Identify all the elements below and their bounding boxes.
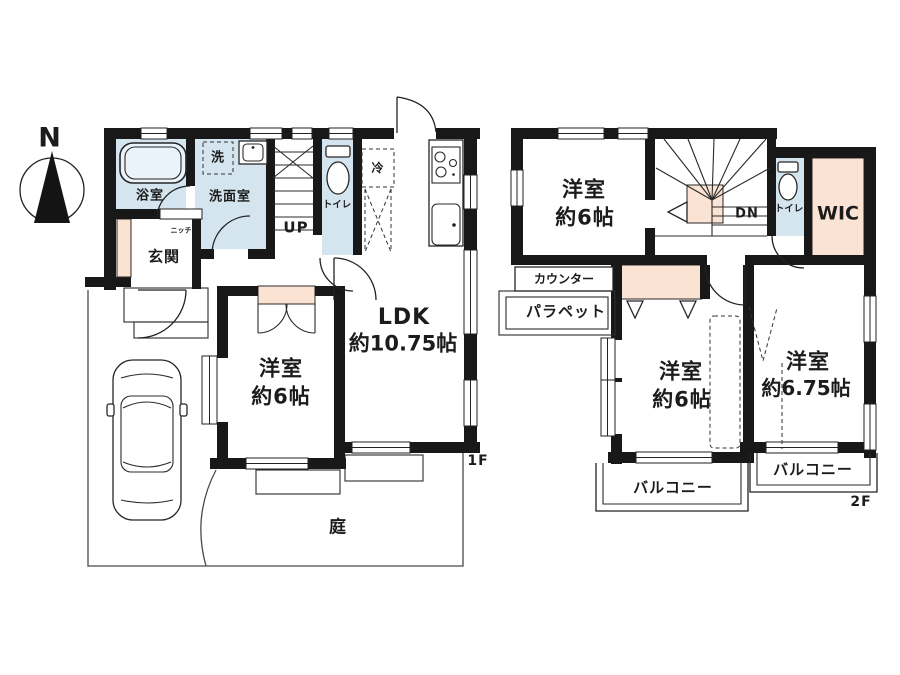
room-label-entrance: 玄関 (148, 250, 180, 265)
room-size-bedroom3-2f: 約6.75帖 (761, 378, 850, 398)
back-door (394, 97, 436, 139)
niche-label: ニッチ (171, 228, 192, 235)
room-label-bedroom1-2f: 洋室 (562, 180, 606, 201)
compass-north-icon (20, 151, 84, 223)
niche-shelf (160, 209, 202, 219)
floor-plan: N 浴室 洗 洗面室 UP トイレ ニッチ 玄関 冷 洋室 約6帖 LDK 約1… (0, 0, 900, 675)
stairs-1f (273, 146, 313, 230)
car-icon (107, 360, 187, 520)
room-label-toilet-1f: トイレ (323, 200, 352, 210)
closet-2f-middle (620, 265, 702, 299)
bay-window (202, 356, 228, 424)
toilet-icon-2f (778, 162, 798, 200)
floor1-label: 1F (467, 454, 488, 468)
parapet-label: パラペット (526, 305, 606, 320)
room-label-bedroom2-2f: 洋室 (659, 362, 703, 383)
room-label-washroom: 洗面室 (209, 191, 251, 204)
room-size-bedroom-1f: 約6帖 (251, 387, 311, 408)
garden-label: 庭 (329, 520, 347, 537)
room-size-bedroom2-2f: 約6帖 (652, 390, 712, 411)
bathtub-icon (120, 143, 186, 183)
room-label-toilet-2f: トイレ (775, 204, 804, 214)
bay-window (601, 338, 622, 436)
room-label-bathroom: 浴室 (136, 190, 164, 203)
room-label-ldk: LDK (378, 307, 430, 329)
refrigerator-label: 冷 (371, 162, 384, 174)
room-label-bedroom-1f: 洋室 (259, 359, 303, 380)
room-label-bedroom3-2f: 洋室 (786, 352, 830, 373)
room-size-ldk: 約10.75帖 (349, 334, 457, 355)
room-label-washing-machine: 洗 (211, 152, 225, 165)
toilet-icon-1f (326, 146, 350, 194)
counter-label: カウンター (534, 273, 594, 285)
room-size-bedroom1-2f: 約6帖 (555, 208, 615, 229)
washbasin-icon (239, 141, 267, 164)
floor2-label: 2F (850, 495, 871, 509)
balcony-right-label: バルコニー (773, 463, 853, 478)
closet-1f (258, 286, 315, 304)
compass-north-label: N (38, 125, 62, 152)
wic-label: WIC (817, 205, 859, 224)
door-arc (705, 236, 804, 305)
shoe-cabinet (117, 219, 131, 277)
kitchen-counter (429, 140, 463, 246)
stairs-down-label: DN (735, 208, 759, 221)
stairs-up-label: UP (283, 221, 308, 236)
balcony-left-label: バルコニー (633, 481, 713, 496)
